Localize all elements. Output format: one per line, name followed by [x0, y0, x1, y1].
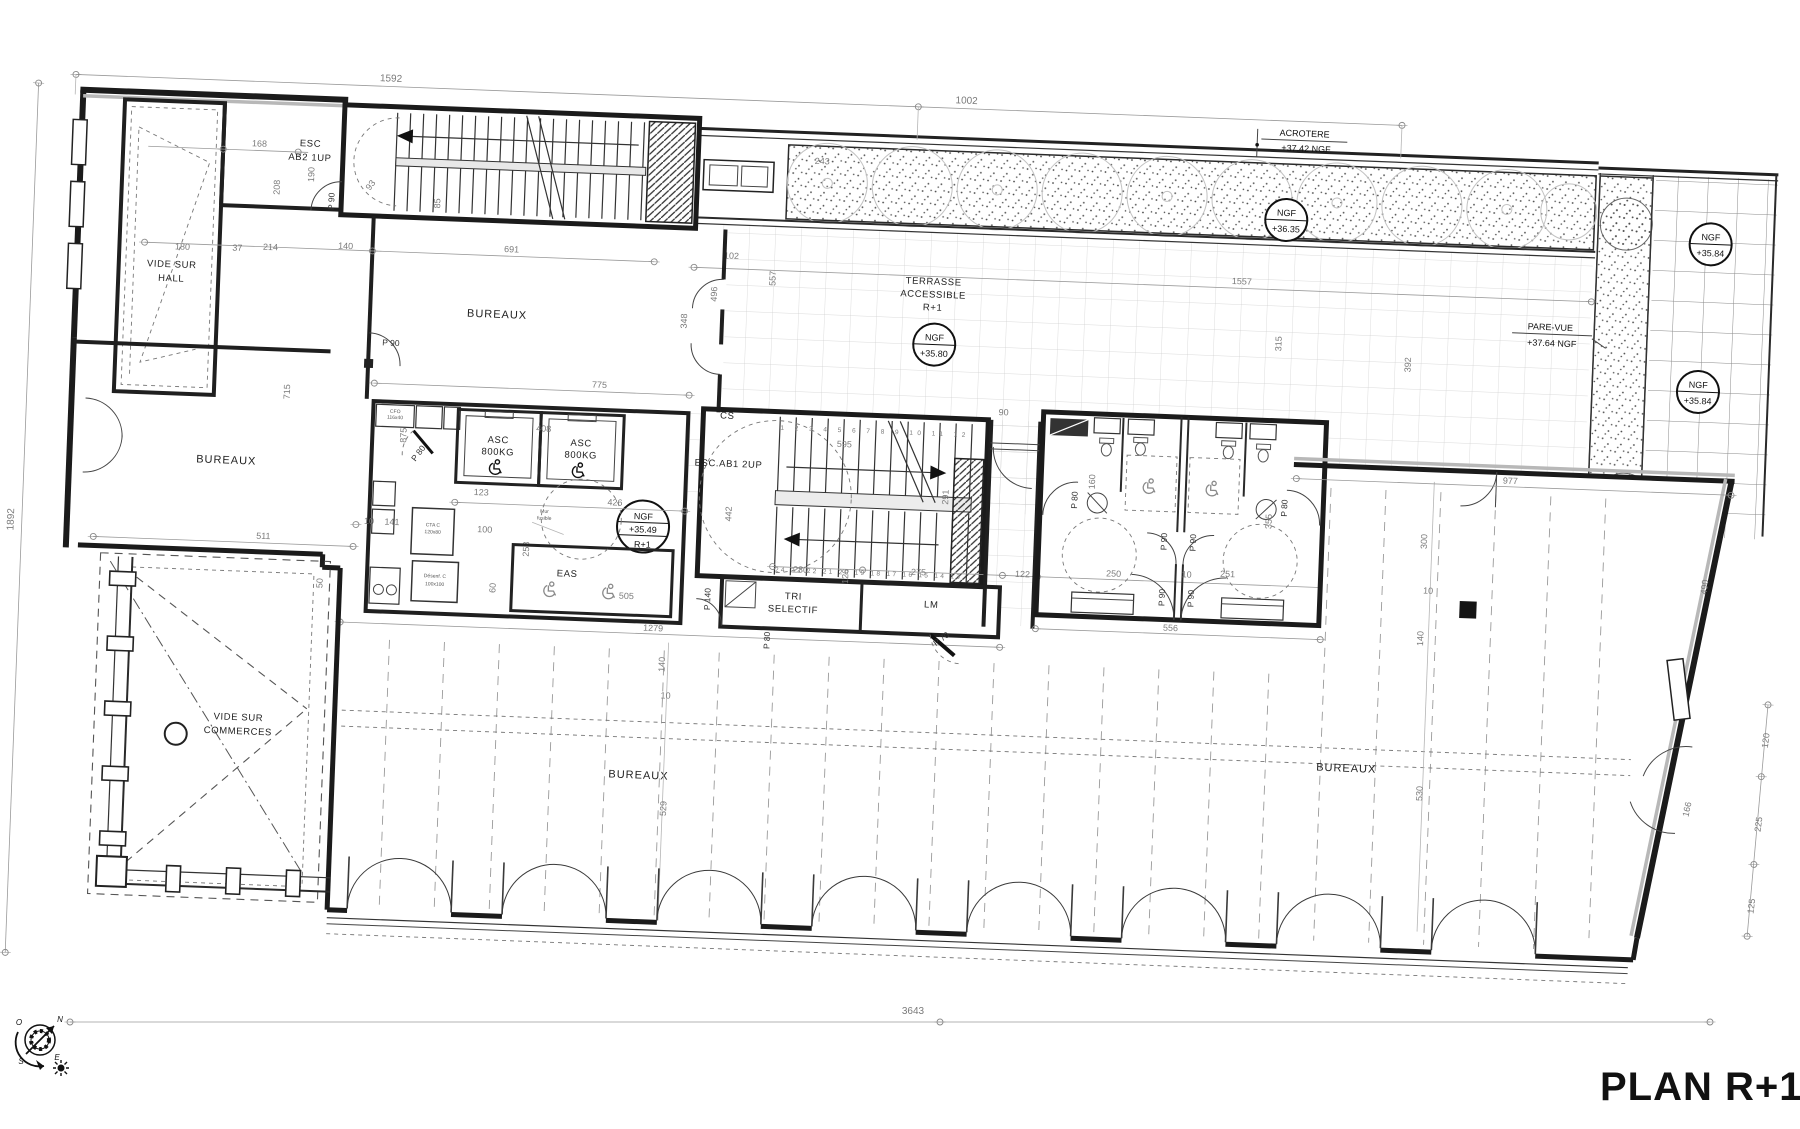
- asc2-label-l1: ASC: [570, 438, 592, 450]
- svg-text:+36.35: +36.35: [1272, 223, 1300, 234]
- room-lm: LM: [924, 599, 939, 611]
- dim-90: 90: [998, 407, 1008, 417]
- dim-190: 190: [306, 167, 317, 182]
- sun-icon: [53, 1060, 69, 1076]
- dim-1002: 1002: [955, 95, 978, 107]
- pare-vue-label: PARE-VUE: [1528, 321, 1574, 333]
- door-p80-wc-left: P 80: [1069, 491, 1080, 509]
- dim-530: 530: [1414, 786, 1425, 801]
- ngf-3584-a: NGF +35.84: [1689, 223, 1733, 267]
- dim-225: 225: [1753, 816, 1765, 832]
- equip-des-l1: Désenf. C: [424, 573, 447, 580]
- compass-n: N: [57, 1015, 63, 1024]
- dim-715: 715: [282, 384, 293, 399]
- dim-168: 168: [252, 138, 267, 149]
- ngf-3580: NGF +35.80: [912, 323, 956, 367]
- room-terrasse-l3: R+1: [923, 302, 943, 314]
- dim-511: 511: [256, 531, 271, 542]
- door-p90-wc: P 90: [1156, 588, 1167, 606]
- column: [1459, 601, 1477, 619]
- dim-490: 490: [1699, 579, 1711, 595]
- dim-214: 214: [263, 242, 278, 253]
- ngf-3584-b: NGF +35.84: [1676, 370, 1720, 414]
- equip-cta-l1: CTA C: [426, 522, 441, 529]
- dim-250: 250: [1106, 568, 1121, 579]
- room-vide-sur-hall-l1: VIDE SUR: [147, 258, 197, 271]
- dim-125: 125: [1745, 898, 1757, 914]
- svg-text:NGF: NGF: [1701, 232, 1721, 243]
- stair-cs-label: CS: [720, 410, 735, 422]
- dim-1892: 1892: [5, 508, 17, 531]
- dim-251: 251: [1220, 569, 1235, 580]
- door-p90-wc: P 90: [1187, 534, 1198, 552]
- floor-plan-canvas: 1592 1002 1892 VIDE SUR HALL 168 208 190: [0, 0, 1800, 1129]
- bureaux-left: BUREAUX 511 715 50: [52, 338, 366, 911]
- dim-37: 37: [232, 243, 242, 253]
- dim-408: 408: [536, 423, 551, 434]
- dim-93: 93: [363, 178, 377, 192]
- room-bureaux-main-right: BUREAUX: [1316, 762, 1377, 776]
- svg-text:+35.49: +35.49: [629, 524, 657, 535]
- door-p140: P 140: [702, 588, 713, 611]
- dim-50: 50: [314, 578, 324, 588]
- dim-977: 977: [1503, 476, 1518, 487]
- dim-875: 875: [398, 428, 409, 443]
- dim-166: 166: [1681, 801, 1694, 818]
- dim-529: 529: [658, 801, 669, 816]
- plan-rotated-group: 1592 1002 1892 VIDE SUR HALL 168 208 190: [0, 59, 1796, 1022]
- asc2-label-l2: 800KG: [564, 449, 597, 461]
- dim-160: 160: [1087, 474, 1098, 489]
- equip-mur-l2: fusible: [537, 515, 552, 522]
- svg-text:+35.80: +35.80: [920, 348, 948, 359]
- svg-text:NGF: NGF: [1277, 208, 1297, 219]
- asc1-label-l2: 800KG: [481, 446, 514, 458]
- dim-355: 355: [1263, 514, 1274, 529]
- dim-140-b: 140: [656, 657, 667, 672]
- door-p80-wc-right: P 80: [1279, 499, 1290, 517]
- door-p80-bureaux: P 80: [761, 631, 772, 649]
- dim-442: 442: [723, 506, 734, 521]
- compass-o: O: [16, 1018, 22, 1027]
- sheet-title: PLAN R+1: [1600, 1065, 1800, 1109]
- svg-text:+35.84: +35.84: [1696, 248, 1724, 259]
- equip-des-l2: 100x100: [425, 581, 445, 588]
- svg-text:NGF: NGF: [1689, 380, 1709, 391]
- dim-1557: 1557: [1232, 276, 1252, 287]
- dim-120: 120: [1760, 732, 1772, 748]
- room-tri-l1: TRI: [785, 591, 803, 603]
- dim-230: 230: [793, 564, 808, 575]
- dim-505: 505: [619, 591, 634, 602]
- svg-text:NGF: NGF: [925, 332, 945, 343]
- room-tri-l2: SELECTIF: [768, 603, 819, 616]
- room-vide-commerces-l1: VIDE SUR: [213, 711, 263, 724]
- equip-cta-l2: 120x80: [424, 529, 441, 536]
- dim-243: 243: [814, 156, 829, 167]
- room-vide-commerces-l2: COMMERCES: [204, 725, 273, 739]
- room-eas: EAS: [557, 568, 578, 580]
- dim-426: 426: [607, 497, 622, 508]
- dim-557: 557: [767, 271, 778, 286]
- dim-496: 496: [709, 286, 720, 301]
- bottom-dimension: 3643: [65, 1006, 1716, 1025]
- dim-10-b: 10: [1181, 569, 1191, 579]
- dim-141-a: 141: [384, 517, 399, 528]
- dim-123: 123: [474, 487, 489, 498]
- dim-10-d: 10: [1423, 586, 1433, 596]
- dim-140-a: 140: [338, 241, 353, 252]
- vide-sur-commerces: VIDE SUR COMMERCES: [88, 553, 343, 903]
- dim-3643: 3643: [902, 1006, 925, 1017]
- dim-180: 180: [175, 241, 190, 252]
- dim-775: 775: [592, 379, 607, 390]
- dim-100: 100: [477, 524, 492, 535]
- stair-ab2-label-l2: AB2 1UP: [288, 152, 332, 165]
- dim-595: 595: [837, 439, 852, 450]
- compass-e: E: [54, 1053, 60, 1062]
- door-p90-stair-ab2: P 90: [326, 192, 337, 210]
- acrotere-value: +37.42 NGF: [1281, 143, 1331, 155]
- room-bureaux-main-left: BUREAUX: [608, 768, 669, 782]
- dim-208: 208: [272, 180, 283, 195]
- dim-1592: 1592: [380, 73, 403, 85]
- door-p90-wc: P 90: [1159, 532, 1170, 550]
- dim-291: 291: [940, 489, 951, 504]
- dim-691: 691: [504, 244, 519, 255]
- dim-556: 556: [1163, 623, 1178, 634]
- dim-315: 315: [1273, 336, 1284, 351]
- ngf-3635: NGF +36.35: [1264, 198, 1308, 242]
- dim-275: 275: [911, 567, 926, 578]
- room-bureaux-top: BUREAUX: [467, 308, 528, 322]
- dim-348: 348: [679, 313, 690, 328]
- room-bureaux-left: BUREAUX: [196, 453, 257, 467]
- dim-10-c: 10: [660, 690, 670, 700]
- dim-60: 60: [487, 583, 497, 593]
- dim-85: 85: [432, 198, 442, 208]
- svg-text:+35.84: +35.84: [1684, 395, 1712, 406]
- dim-126: 126: [840, 569, 851, 584]
- equip-cfo-l2: 116x40: [387, 415, 403, 422]
- svg-text:NGF: NGF: [634, 511, 654, 522]
- dim-122: 122: [1015, 569, 1030, 580]
- compass-icon: N O S E: [16, 1015, 69, 1076]
- compass-s: S: [18, 1057, 24, 1066]
- dim-300: 300: [1419, 534, 1430, 549]
- stair-ab2-label-l1: ESC: [300, 138, 322, 150]
- stair-esc-ab2: ESC AB2 1UP P 90 93 85: [286, 103, 776, 232]
- dim-1279: 1279: [643, 623, 663, 634]
- room-vide-sur-hall-l2: HALL: [158, 273, 185, 285]
- acrotere-label: ACROTERE: [1279, 128, 1329, 140]
- door-p90-bureaux-top: P 90: [382, 337, 400, 348]
- plan-sheet: 1592 1002 1892 VIDE SUR HALL 168 208 190: [0, 0, 1800, 1129]
- dim-140-c: 140: [1415, 631, 1426, 646]
- pare-vue-value: +37.64 NGF: [1527, 337, 1577, 349]
- ngf-3549: NGF +35.49 R+1: [616, 500, 670, 554]
- door-p90-wc: P 90: [1185, 590, 1196, 608]
- dim-392: 392: [1403, 357, 1414, 372]
- asc1-label-l1: ASC: [487, 435, 509, 447]
